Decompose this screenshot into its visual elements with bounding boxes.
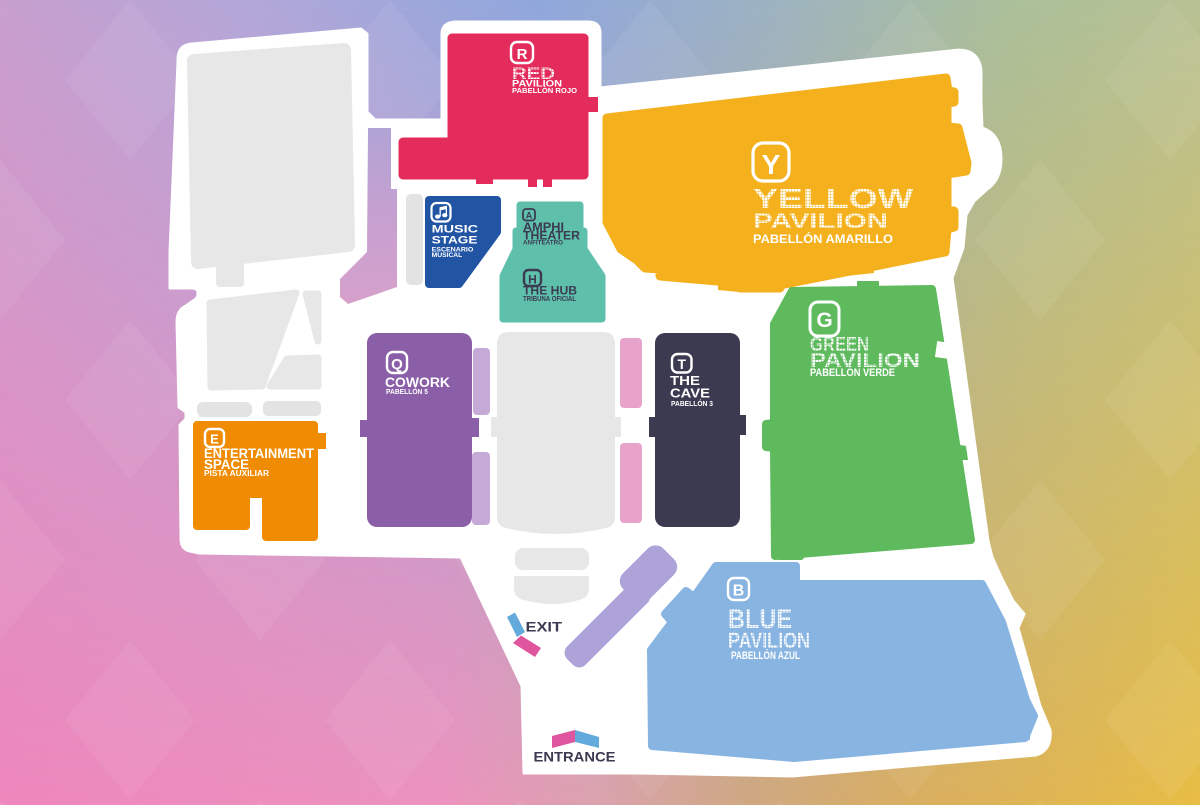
svg-text:PABELLÓN AZUL: PABELLÓN AZUL — [731, 649, 800, 662]
svg-text:TRIBUNA OFICIAL: TRIBUNA OFICIAL — [523, 296, 577, 303]
svg-text:B: B — [733, 583, 745, 600]
svg-text:E: E — [210, 432, 219, 447]
svg-text:A: A — [526, 210, 533, 220]
svg-text:R: R — [517, 46, 528, 63]
svg-text:PABELLÓN 5: PABELLÓN 5 — [386, 387, 428, 396]
svg-text:PABELLÓN AMARILLO: PABELLÓN AMARILLO — [753, 231, 893, 246]
svg-text:STAGE: STAGE — [432, 234, 478, 246]
svg-text:H: H — [528, 273, 537, 287]
svg-text:PAVILION: PAVILION — [512, 79, 562, 89]
svg-text:Q: Q — [391, 356, 403, 373]
svg-text:ENTRANCE: ENTRANCE — [534, 749, 616, 765]
svg-text:MUSICAL: MUSICAL — [432, 252, 463, 259]
svg-text:G: G — [816, 309, 832, 332]
svg-text:PABELLÓN ROJO: PABELLÓN ROJO — [512, 86, 578, 95]
svg-text:PABELLÓN 3: PABELLÓN 3 — [671, 399, 713, 408]
svg-text:PISTA AUXILIAR: PISTA AUXILIAR — [204, 469, 269, 478]
svg-text:T: T — [678, 356, 687, 372]
svg-text:EXIT: EXIT — [526, 620, 563, 635]
svg-text:ANFITEATRO: ANFITEATRO — [523, 240, 563, 247]
svg-text:PABELLÓN VERDE: PABELLÓN VERDE — [810, 366, 895, 379]
svg-text:Y: Y — [762, 149, 781, 180]
svg-text:PAVILION: PAVILION — [753, 210, 888, 233]
